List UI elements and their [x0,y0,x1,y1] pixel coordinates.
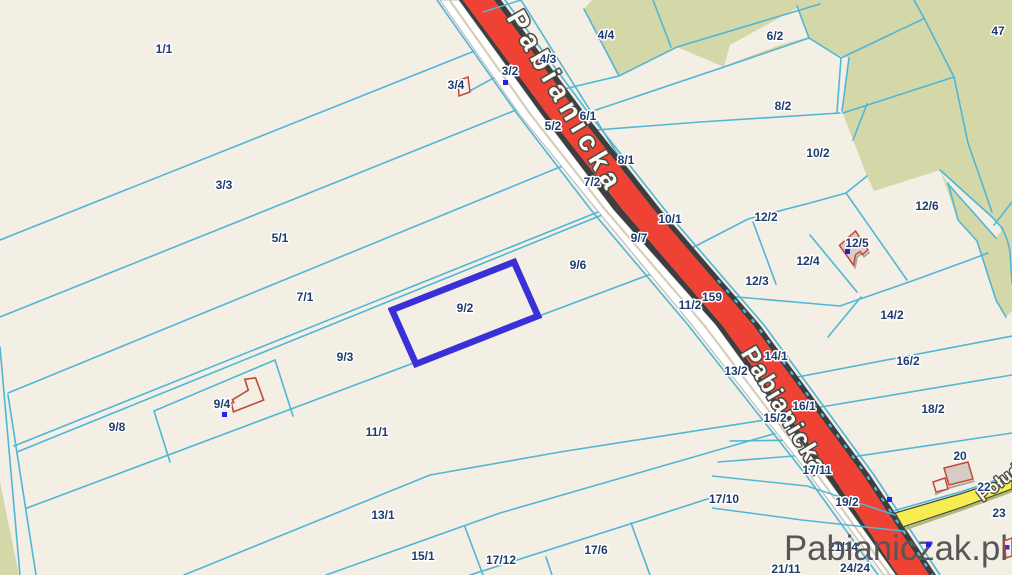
svg-text:8/1: 8/1 [618,153,635,167]
svg-text:6/2: 6/2 [767,29,784,43]
svg-text:9/3: 9/3 [337,350,354,364]
svg-text:4/4: 4/4 [598,28,615,42]
svg-text:9/2: 9/2 [457,301,474,315]
svg-text:9/7: 9/7 [631,231,648,245]
svg-text:7/1: 7/1 [297,290,314,304]
svg-text:1/1: 1/1 [156,42,173,56]
svg-text:Pabianiczak.pl: Pabianiczak.pl [784,529,1008,568]
svg-text:16/2: 16/2 [896,354,920,368]
svg-text:10/1: 10/1 [658,212,682,226]
svg-text:12/2: 12/2 [754,210,778,224]
svg-text:10/2: 10/2 [806,146,830,160]
svg-text:9/4: 9/4 [214,397,231,411]
svg-text:13/1: 13/1 [371,508,395,522]
svg-text:12/6: 12/6 [915,199,939,213]
svg-text:16/1: 16/1 [792,399,816,413]
svg-text:11/1: 11/1 [366,425,389,439]
svg-text:19/2: 19/2 [835,495,859,509]
svg-text:20: 20 [953,449,967,463]
svg-text:3/4: 3/4 [448,78,465,92]
svg-text:3/2: 3/2 [502,64,519,78]
svg-text:7/2: 7/2 [584,175,601,189]
svg-text:6/1: 6/1 [580,109,597,123]
svg-text:14/1: 14/1 [764,349,788,363]
svg-text:4/3: 4/3 [540,52,557,66]
svg-text:8/2: 8/2 [775,99,792,113]
svg-text:47: 47 [991,24,1005,38]
svg-text:12/4: 12/4 [796,254,820,268]
svg-text:159: 159 [702,290,722,304]
svg-text:22: 22 [977,480,991,494]
svg-text:5/2: 5/2 [545,119,562,133]
svg-text:12/3: 12/3 [745,274,769,288]
svg-text:17/11: 17/11 [802,463,832,477]
svg-text:14/2: 14/2 [880,308,904,322]
svg-text:15/2: 15/2 [763,411,787,425]
svg-text:9/8: 9/8 [109,420,126,434]
svg-text:23: 23 [992,506,1006,520]
svg-text:17/10: 17/10 [709,492,739,506]
svg-text:18/2: 18/2 [921,402,945,416]
svg-text:3/3: 3/3 [216,178,233,192]
svg-text:15/1: 15/1 [411,549,435,563]
svg-text:5/1: 5/1 [272,231,289,245]
svg-text:13/2: 13/2 [724,364,748,378]
svg-text:17/12: 17/12 [486,553,516,567]
svg-text:17/6: 17/6 [584,543,608,557]
svg-text:9/6: 9/6 [570,258,587,272]
svg-text:12/5: 12/5 [845,236,869,250]
svg-text:11/2: 11/2 [679,298,702,312]
